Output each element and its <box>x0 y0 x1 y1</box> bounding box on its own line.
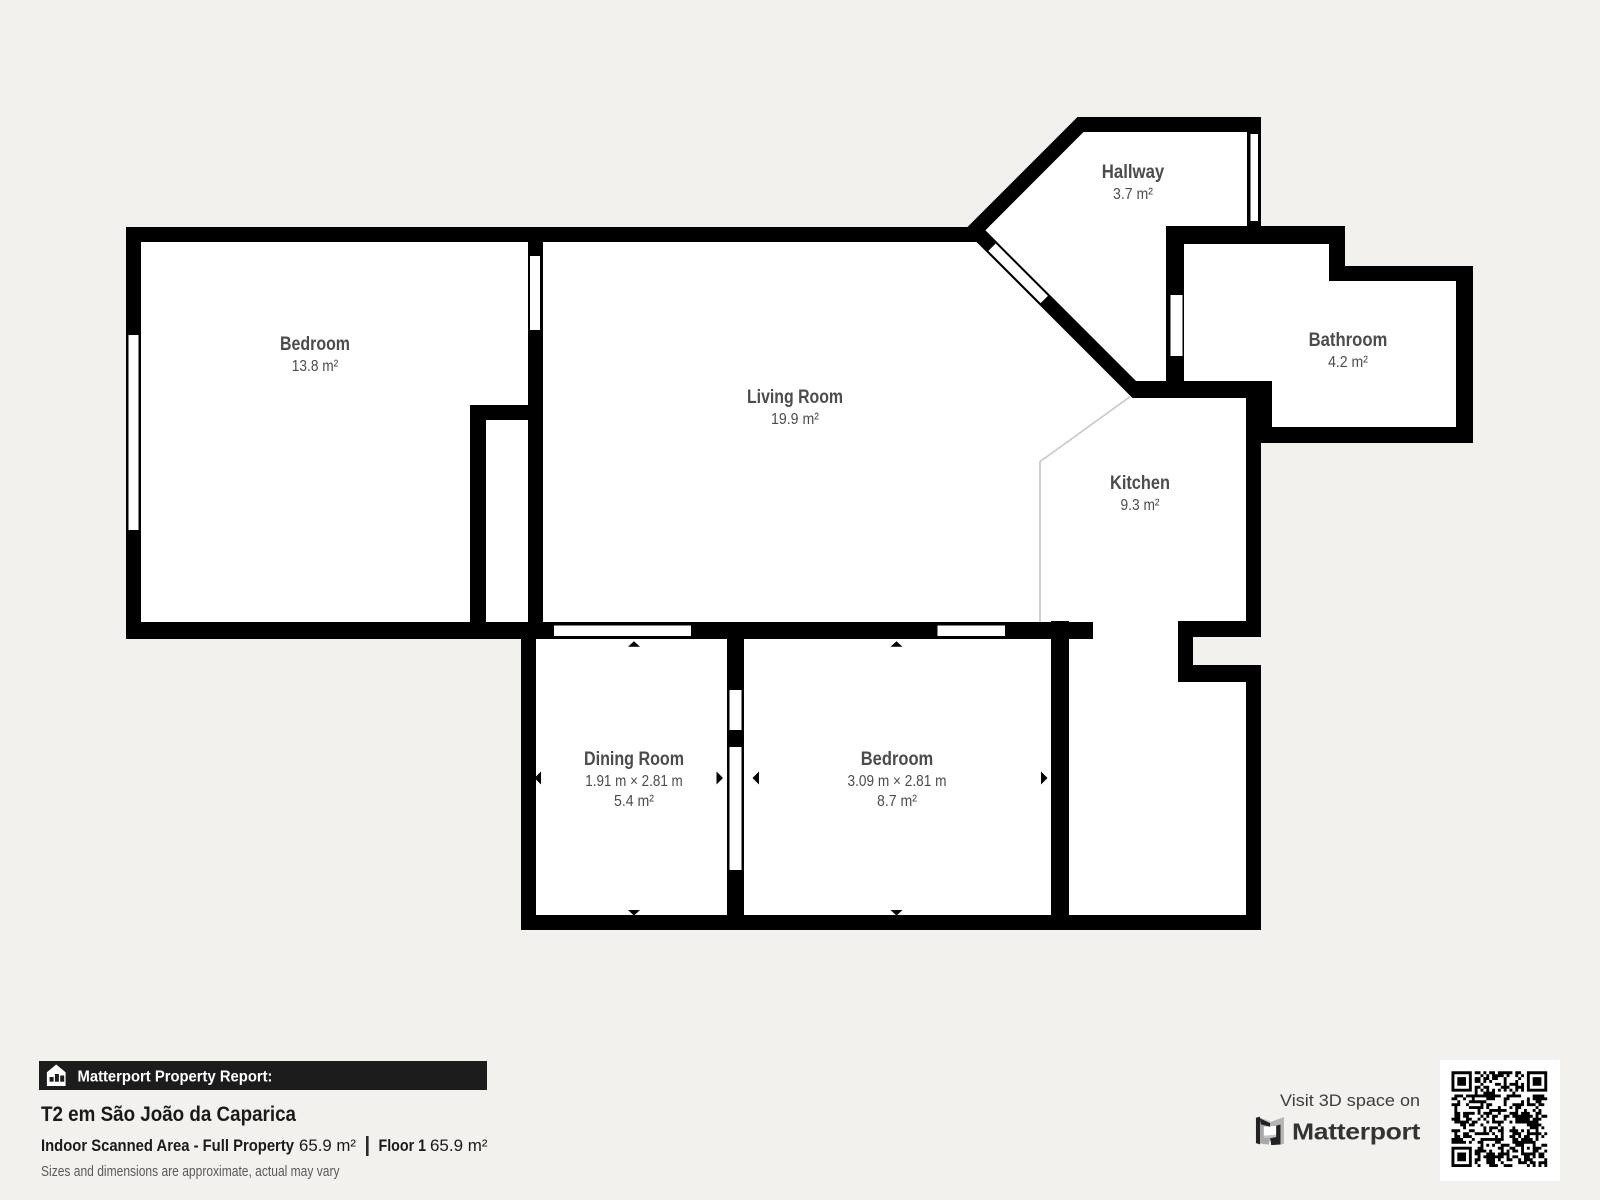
svg-text:Visit 3D space on: Visit 3D space on <box>1280 1091 1420 1110</box>
svg-text:T2 em São João da Caparica: T2 em São João da Caparica <box>41 1103 296 1126</box>
svg-text:Living Room: Living Room <box>747 387 843 408</box>
svg-text:Sizes and dimensions are appro: Sizes and dimensions are approximate, ac… <box>41 1164 340 1180</box>
svg-text:1.91 m × 2.81 m: 1.91 m × 2.81 m <box>585 773 683 790</box>
svg-text:Indoor Scanned Area - Full Pro: Indoor Scanned Area - Full Property <box>41 1136 294 1155</box>
svg-text:Matterport Property Report:: Matterport Property Report: <box>78 1069 273 1086</box>
svg-text:5.4 m²: 5.4 m² <box>614 793 655 810</box>
svg-text:19.9 m²: 19.9 m² <box>771 411 820 428</box>
svg-text:Floor 1: Floor 1 <box>379 1136 427 1155</box>
svg-text:Dining Room: Dining Room <box>584 749 684 770</box>
svg-text:8.7 m²: 8.7 m² <box>877 793 918 810</box>
svg-text:13.8 m²: 13.8 m² <box>292 358 339 375</box>
svg-text:Bathroom: Bathroom <box>1309 330 1388 351</box>
svg-text:65.9 m²: 65.9 m² <box>430 1136 488 1155</box>
svg-text:Bedroom: Bedroom <box>280 334 350 355</box>
svg-text:3.7 m²: 3.7 m² <box>1113 186 1154 203</box>
svg-text:Bedroom: Bedroom <box>861 749 934 770</box>
svg-text:Matterport: Matterport <box>1292 1119 1421 1145</box>
svg-text:Kitchen: Kitchen <box>1110 473 1170 494</box>
svg-text:Hallway: Hallway <box>1102 162 1165 183</box>
svg-text:4.2 m²: 4.2 m² <box>1328 354 1368 371</box>
svg-text:9.3 m²: 9.3 m² <box>1121 497 1161 514</box>
svg-text:65.9 m²: 65.9 m² <box>299 1136 356 1155</box>
svg-text:3.09 m × 2.81 m: 3.09 m × 2.81 m <box>848 773 947 790</box>
